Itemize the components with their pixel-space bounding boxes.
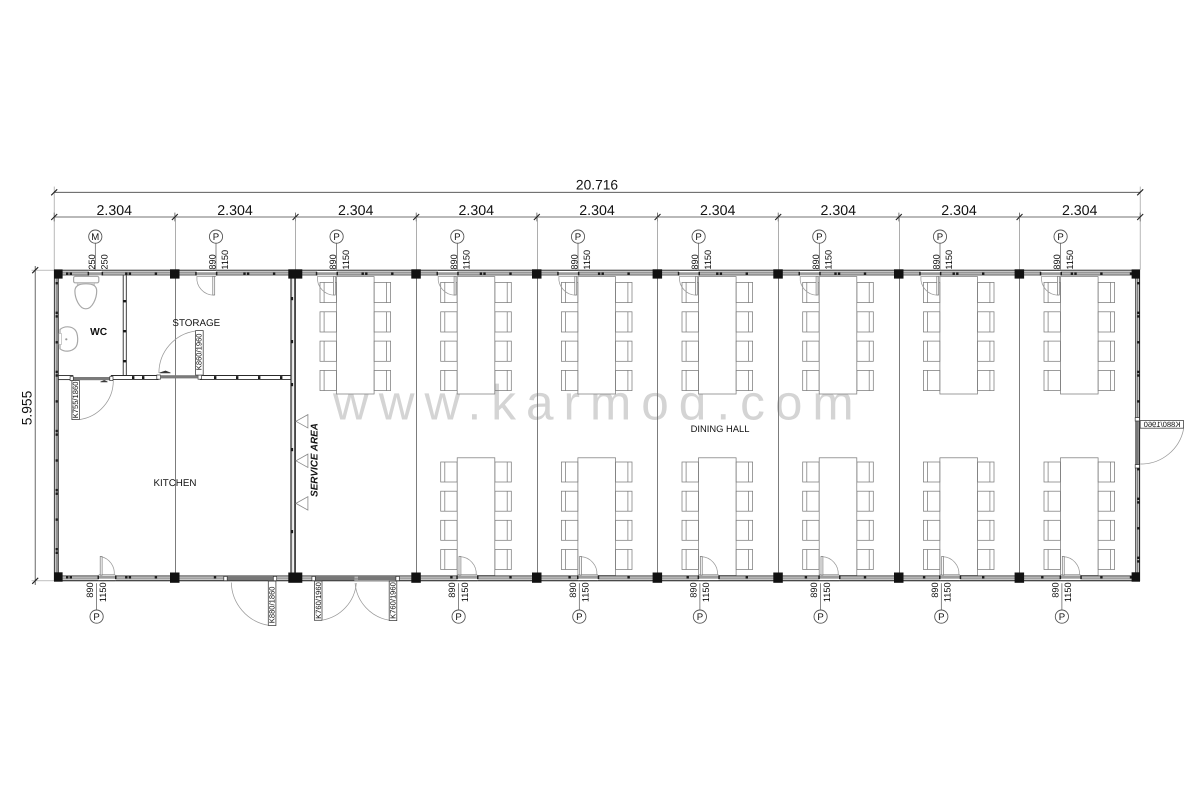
svg-text:1150: 1150 — [1063, 582, 1073, 602]
svg-text:1150: 1150 — [944, 250, 954, 270]
svg-text:SERVICE AREA: SERVICE AREA — [310, 423, 321, 497]
svg-text:P: P — [938, 612, 944, 623]
svg-text:1150: 1150 — [824, 250, 834, 270]
svg-text:1150: 1150 — [581, 582, 591, 602]
svg-text:K760/1960: K760/1960 — [314, 582, 323, 619]
svg-text:2.304: 2.304 — [338, 203, 374, 219]
svg-text:890: 890 — [690, 254, 700, 269]
svg-text:1150: 1150 — [1065, 250, 1075, 270]
svg-text:P: P — [937, 232, 943, 243]
svg-text:890: 890 — [328, 254, 338, 269]
svg-text:P: P — [575, 232, 581, 243]
svg-text:P: P — [817, 612, 823, 623]
svg-text:890: 890 — [932, 254, 942, 269]
svg-text:P: P — [454, 232, 460, 243]
svg-text:K880/1960: K880/1960 — [1144, 420, 1181, 429]
svg-text:1150: 1150 — [220, 250, 230, 270]
svg-text:STORAGE: STORAGE — [172, 318, 220, 329]
svg-text:890: 890 — [809, 582, 819, 597]
svg-text:DINING HALL: DINING HALL — [691, 423, 750, 434]
svg-text:1150: 1150 — [341, 250, 351, 270]
svg-text:890: 890 — [570, 254, 580, 269]
svg-text:250: 250 — [100, 254, 110, 269]
svg-text:890: 890 — [930, 582, 940, 597]
svg-text:WC: WC — [90, 327, 108, 338]
svg-text:1150: 1150 — [822, 582, 832, 602]
svg-text:20.716: 20.716 — [576, 177, 619, 192]
svg-text:2.304: 2.304 — [459, 203, 495, 219]
svg-text:M: M — [91, 232, 99, 243]
svg-text:K880/1860: K880/1860 — [267, 586, 276, 623]
svg-text:250: 250 — [87, 254, 97, 269]
svg-text:P: P — [1059, 612, 1065, 623]
svg-text:2.304: 2.304 — [821, 203, 857, 219]
svg-text:890: 890 — [689, 582, 699, 597]
svg-text:890: 890 — [568, 582, 578, 597]
svg-text:890: 890 — [1052, 254, 1062, 269]
svg-text:890: 890 — [447, 582, 457, 597]
svg-text:890: 890 — [449, 254, 459, 269]
svg-text:K760/1960: K760/1960 — [389, 582, 398, 619]
svg-text:K860/1960: K860/1960 — [195, 333, 204, 370]
svg-text:1150: 1150 — [703, 250, 713, 270]
svg-text:2.304: 2.304 — [1062, 203, 1098, 219]
svg-text:2.304: 2.304 — [700, 203, 736, 219]
svg-text:1150: 1150 — [460, 582, 470, 602]
svg-text:890: 890 — [811, 254, 821, 269]
svg-text:P: P — [576, 612, 582, 623]
svg-text:P: P — [455, 612, 461, 623]
svg-text:P: P — [1057, 232, 1063, 243]
svg-text:890: 890 — [208, 254, 218, 269]
svg-text:P: P — [333, 232, 339, 243]
svg-text:1150: 1150 — [701, 582, 711, 602]
svg-text:2.304: 2.304 — [217, 203, 253, 219]
svg-text:2.304: 2.304 — [97, 203, 133, 219]
svg-text:P: P — [697, 612, 703, 623]
svg-text:2.304: 2.304 — [579, 203, 615, 219]
svg-text:P: P — [695, 232, 701, 243]
svg-text:1150: 1150 — [98, 582, 108, 602]
svg-text:2.304: 2.304 — [941, 203, 977, 219]
svg-text:1150: 1150 — [582, 250, 592, 270]
svg-text:P: P — [213, 232, 219, 243]
svg-text:1150: 1150 — [943, 582, 953, 602]
svg-text:1150: 1150 — [462, 250, 472, 270]
svg-text:KITCHEN: KITCHEN — [153, 478, 196, 489]
svg-text:P: P — [816, 232, 822, 243]
svg-text:P: P — [93, 612, 99, 623]
svg-text:5.955: 5.955 — [20, 390, 35, 425]
svg-text:890: 890 — [1051, 582, 1061, 597]
svg-text:K755/1860: K755/1860 — [71, 382, 80, 419]
svg-text:890: 890 — [85, 582, 95, 597]
